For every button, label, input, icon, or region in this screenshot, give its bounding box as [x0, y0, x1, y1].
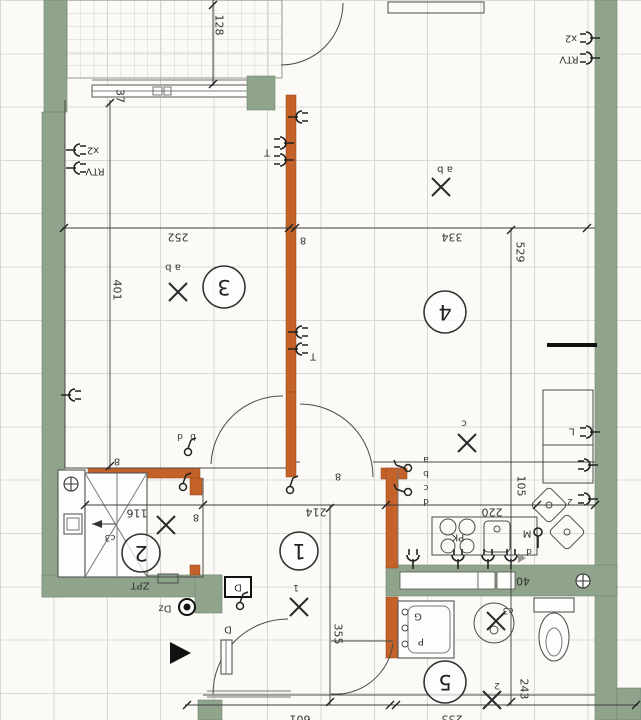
- dim-220: 220: [482, 506, 503, 519]
- dim-601: 601: [290, 713, 311, 720]
- wall-balcony-right-pier: [247, 76, 275, 110]
- radiator: [221, 640, 232, 674]
- hall-light-icon: [290, 598, 308, 616]
- svg-text:5: 5: [438, 670, 451, 694]
- dimension-texts: 128 37 252 334 529 401 116 214 220 105 4…: [111, 15, 531, 720]
- svg-text:3: 3: [217, 275, 230, 299]
- divider-niche-3: [497, 572, 515, 589]
- label-room4-light-group-c: c: [461, 418, 467, 429]
- balcony-door-swing: [281, 3, 343, 65]
- rtv-socket-left-2-icon: [66, 162, 86, 174]
- svg-text:2: 2: [134, 541, 147, 565]
- dim-8-b: 8: [114, 456, 120, 467]
- label-cluster-c: c: [423, 482, 428, 492]
- floor-plan-scan: D: [0, 0, 641, 720]
- label-x2-right: x2: [565, 33, 577, 44]
- wall-exterior-right: [595, 0, 617, 720]
- dim-334: 334: [442, 231, 463, 244]
- label-x2-left: x2: [87, 145, 99, 156]
- room2-number: 2: [122, 534, 160, 572]
- svg-text:4: 4: [438, 300, 451, 324]
- kitchen-m-symbol: [534, 528, 542, 548]
- intercom-box: D: [225, 577, 251, 597]
- label-zpt: ZPT: [130, 580, 150, 591]
- wc-light-icon: [483, 691, 501, 709]
- label-g: G: [414, 611, 422, 622]
- label-t-lower: T: [309, 351, 317, 362]
- toilet: [534, 598, 574, 661]
- label-hall-light-1: 1: [293, 582, 299, 592]
- floor-plan-drawing: D: [0, 0, 641, 720]
- rtv-socket-left-1-icon: [66, 144, 86, 156]
- label-cluster-a: a: [423, 454, 429, 464]
- kitchen-counter: [432, 487, 585, 555]
- label-rtv-right: RTV: [559, 54, 578, 65]
- partition-room3-room4: [286, 95, 296, 392]
- bath-vent-icon: [576, 574, 590, 588]
- label-cluster-b: b: [423, 468, 429, 478]
- room1-number: 1: [280, 532, 318, 570]
- vent-grille-icon: [64, 477, 78, 491]
- washing-machine: [398, 601, 454, 658]
- room4-door-swing: [300, 404, 373, 477]
- label-room3-light-group: a b: [165, 262, 181, 273]
- label-d-door: D: [224, 624, 232, 635]
- label-cluster-d: d: [423, 496, 429, 506]
- label-p: P: [418, 636, 424, 647]
- hall-switch-icon: [287, 476, 299, 494]
- partition-hall-stub: [286, 392, 296, 477]
- dim-40: 40: [516, 575, 530, 588]
- dim-233: 233: [442, 713, 463, 720]
- dim-128: 128: [213, 15, 226, 36]
- room3-number: 3: [203, 266, 245, 308]
- dim-355: 355: [332, 624, 345, 645]
- dim-214: 214: [306, 506, 327, 519]
- corner-basin: [531, 487, 586, 551]
- label-rtv-left: RTV: [85, 166, 104, 177]
- svg-text:1: 1: [292, 539, 305, 563]
- room4-light-c-icon: [458, 434, 476, 452]
- dim-105: 105: [515, 476, 528, 497]
- dim-529: 529: [514, 242, 527, 263]
- label-room4-light-group-ab: a b: [437, 164, 453, 175]
- dim-8-c: 8: [193, 512, 199, 523]
- wall-balcony-left: [44, 0, 67, 112]
- label-bath-c3: c3: [503, 605, 514, 615]
- balcony-floor: [67, 0, 282, 78]
- cabinet-right-2: [543, 445, 593, 483]
- room3-door-swing: [211, 396, 283, 464]
- entry-door-threshold: [207, 691, 291, 697]
- partition-hall-kitchen: [386, 468, 398, 568]
- entrance-arrow: [170, 642, 191, 664]
- dim-401: 401: [111, 280, 124, 301]
- dim-37: 37: [114, 89, 127, 103]
- dim-8-a: 8: [300, 235, 306, 246]
- label-switch-b: b: [190, 431, 196, 441]
- wall-block-bottom-left: [198, 700, 222, 720]
- room2-light-icon: [157, 516, 175, 534]
- label-l-fridge: L: [569, 426, 575, 437]
- balcony: [67, 0, 343, 97]
- room5-number: 5: [424, 661, 466, 703]
- label-wc-light-2: 2: [494, 680, 500, 690]
- partition-room2-corner: [190, 478, 202, 495]
- room3-light-icon: [169, 283, 187, 301]
- room2-shaft: [58, 470, 85, 577]
- dim-243: 243: [518, 679, 531, 700]
- doorbell: [179, 599, 195, 615]
- intercom-label: D: [234, 582, 242, 593]
- dim-252: 252: [168, 231, 189, 244]
- room4-top-cabinet: [388, 2, 484, 13]
- dim-116: 116: [127, 507, 148, 520]
- dim-8-d: 8: [335, 471, 341, 482]
- label-d-small: d: [526, 546, 532, 556]
- divider-niche-1: [400, 572, 478, 589]
- label-switch-d: d: [177, 431, 183, 441]
- label-t-upper: T: [263, 147, 271, 158]
- bath-light-icon: [487, 612, 505, 630]
- label-m: M: [523, 528, 532, 539]
- divider-niche-2: [478, 572, 495, 589]
- room4-number: 4: [424, 291, 466, 333]
- electrical: [61, 32, 600, 709]
- partition-entry-jamb: [190, 565, 200, 575]
- wall-entry-pier: [195, 575, 222, 613]
- room4-light-a-icon: [432, 178, 450, 196]
- label-room2-c3: c3: [105, 532, 116, 542]
- kitchen-sink: [484, 521, 510, 552]
- label-pk: PK: [451, 532, 464, 543]
- bath-door-swing: [331, 643, 393, 694]
- label-socket-2: 2: [567, 496, 573, 506]
- label-dz: Dz: [159, 603, 172, 614]
